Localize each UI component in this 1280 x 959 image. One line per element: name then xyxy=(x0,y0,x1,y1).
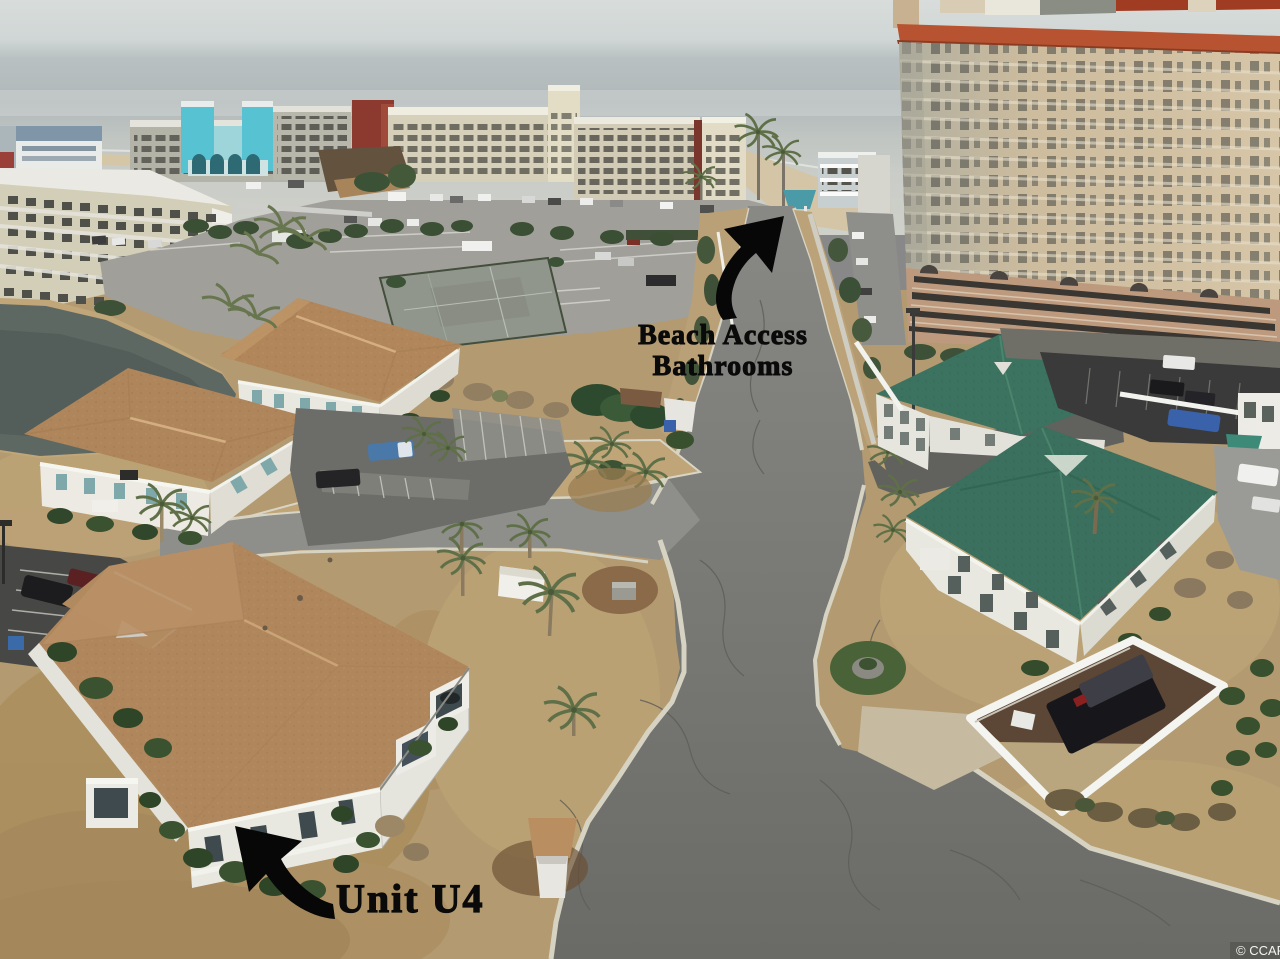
svg-text:Bathrooms: Bathrooms xyxy=(653,351,794,382)
svg-text:© CCAR: © CCAR xyxy=(1236,943,1280,958)
svg-text:Beach Access: Beach Access xyxy=(638,320,808,351)
svg-text:Unit U4: Unit U4 xyxy=(336,876,484,921)
